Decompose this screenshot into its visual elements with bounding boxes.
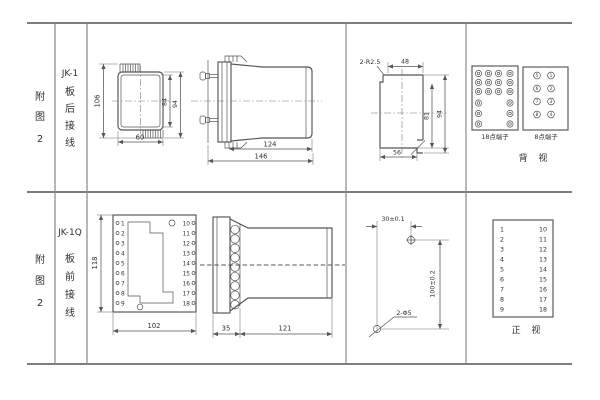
table-grid — [27, 23, 572, 364]
figure2-label-cell: 附 图 2 — [35, 253, 45, 309]
terminal-pin-mark — [509, 90, 512, 93]
terminal-pin — [116, 222, 119, 225]
terminal-number: 10 — [183, 221, 191, 227]
terminal-number: 6 — [536, 86, 539, 91]
terminal-pin — [192, 282, 195, 285]
terminal-pin-mark — [509, 112, 512, 115]
terminal-bump — [231, 291, 240, 300]
terminal-pin-mark — [497, 81, 500, 84]
terminal-block-8-grid: 51627384 — [534, 72, 555, 118]
terminal-number: 9 — [500, 307, 504, 314]
dim-cutout-inner-height: 81 — [424, 112, 431, 120]
terminal-pin — [485, 70, 491, 76]
terminal-pin-mark — [477, 112, 480, 115]
dim-outer-height: 94 — [172, 100, 179, 108]
figure-label-char: 2 — [37, 298, 43, 309]
terminal-pin — [116, 302, 119, 305]
dim-cutout-height: 94 — [437, 110, 444, 118]
relay-front-wiring-side-view: 35 121 — [200, 217, 345, 338]
terminal-number: 7 — [536, 99, 539, 104]
terminal-pin — [192, 262, 195, 265]
terminal-number: 7 — [500, 287, 504, 294]
terminal-number: 10 — [539, 227, 547, 234]
dim-width: 60 — [136, 134, 145, 142]
dim-case-length: 121 — [279, 325, 292, 333]
terminal-number: 11 — [183, 231, 191, 237]
wiring-char: 接 — [65, 288, 75, 301]
model-name: JK-1Q — [57, 228, 82, 238]
terminal-pin — [507, 88, 513, 94]
terminal-block-18-label: 18点端子 — [481, 132, 509, 141]
figure-label-char: 图 — [35, 275, 45, 287]
terminal-number: 3 — [550, 99, 553, 104]
terminal-bump — [231, 244, 240, 253]
terminal-pin — [495, 79, 501, 85]
back-view-label: 背 视 — [519, 152, 552, 164]
terminal-number: 1 — [500, 227, 504, 234]
terminal-number: 4 — [500, 257, 504, 264]
mounting-bolt — [200, 72, 218, 80]
terminal-number: 15 — [539, 277, 547, 284]
terminal-pin-mark — [497, 90, 500, 93]
terminal-number: 8 — [536, 112, 539, 117]
dim-plate-height: 118 — [91, 257, 99, 270]
terminal-pin-mark — [509, 72, 512, 75]
terminal-number: 16 — [183, 281, 191, 287]
terminal-pin-mark — [487, 90, 490, 93]
figure-label-char: 图 — [35, 111, 45, 123]
terminal-number: 11 — [539, 237, 547, 244]
panel-cutout-view: 2-R2.5 48 81 94 56 — [360, 59, 449, 162]
terminal-number: 2 — [550, 86, 553, 91]
terminal-block-8-label: 8点端子 — [534, 132, 558, 141]
figure1-model-cell: JK-1 板 后 接 线 — [61, 69, 79, 149]
dim-hole-v-spacing: 100±0.2 — [430, 270, 437, 297]
terminal-number: 5 — [536, 73, 539, 78]
figure-label-char: 2 — [37, 134, 43, 145]
terminal-number: 15 — [183, 271, 191, 277]
terminal-pin — [192, 302, 195, 305]
terminal-pin-mark — [497, 72, 500, 75]
dim-top-width: 48 — [401, 59, 409, 66]
terminal-pin — [116, 262, 119, 265]
terminal-pin — [192, 232, 195, 235]
terminal-number: 17 — [539, 297, 547, 304]
terminal-number: 9 — [121, 301, 125, 307]
dim-bottom-width: 56 — [393, 150, 401, 157]
drawing-svg: 附 图 2 JK-1 板 后 接 线 106 84 94 60 — [0, 0, 600, 400]
terminal-number: 17 — [183, 291, 191, 297]
terminal-number: 18 — [539, 307, 547, 314]
terminal-pin — [485, 88, 491, 94]
terminal-pin — [507, 100, 513, 106]
terminal-number: 6 — [500, 277, 504, 284]
terminal-pin — [475, 110, 481, 116]
terminal-number: 7 — [121, 281, 125, 287]
dim-hole-h-spacing: 30±0.1 — [381, 216, 404, 223]
terminal-pin — [116, 242, 119, 245]
terminal-pin — [475, 121, 481, 127]
terminal-block-18-grid — [475, 70, 513, 127]
panel-drilling-plan: 30±0.1 100±0.2 2-Φ5 — [366, 216, 449, 337]
dim-flange-depth: 35 — [222, 325, 231, 333]
relay-rear-view: 106 84 94 60 — [94, 64, 185, 146]
terminal-number: 8 — [500, 297, 504, 304]
terminal-pin — [192, 292, 195, 295]
wiring-char: 接 — [65, 119, 75, 132]
wiring-char: 板 — [65, 85, 75, 98]
terminal-pin — [475, 88, 481, 94]
dim-corner-radius-note: 2-R2.5 — [360, 59, 381, 66]
terminal-pin — [116, 292, 119, 295]
terminal-number: 4 — [550, 112, 553, 117]
terminal-bump — [231, 225, 240, 234]
terminal-list: 123456789101112131415161718 — [500, 227, 547, 314]
terminal-bump — [231, 272, 240, 281]
terminal-pin-mark — [477, 123, 480, 126]
terminal-number: 12 — [183, 241, 191, 247]
terminal-pin-mark — [487, 72, 490, 75]
terminal-pin — [507, 70, 513, 76]
figure-label-char: 附 — [35, 90, 45, 103]
wiring-char: 线 — [65, 306, 75, 319]
mounting-bolt — [200, 116, 218, 124]
dim-total-height: 106 — [94, 95, 102, 108]
dim-hole-diameter-note: 2-Φ5 — [396, 310, 411, 317]
terminal-number: 14 — [539, 267, 547, 274]
terminal-pin-mark — [477, 81, 480, 84]
dim-inner-height: 84 — [162, 98, 169, 106]
terminal-back-view: 18点端子 51627384 8点端子 背 视 — [472, 66, 568, 164]
terminal-number: 16 — [539, 287, 547, 294]
terminal-number: 4 — [121, 251, 125, 257]
terminal-bump — [231, 235, 240, 244]
terminal-number: 13 — [539, 257, 547, 264]
technical-drawing-sheet: 附 图 2 JK-1 板 后 接 线 106 84 94 60 — [0, 0, 600, 400]
terminal-pin-mark — [477, 72, 480, 75]
terminal-pin — [495, 70, 501, 76]
terminal-number: 2 — [121, 231, 125, 237]
terminal-pin-mark — [477, 90, 480, 93]
terminal-number: 5 — [121, 261, 125, 267]
wiring-char: 线 — [65, 136, 75, 149]
terminal-number: 3 — [500, 247, 504, 254]
terminal-pin — [116, 252, 119, 255]
terminal-pin-mark — [487, 81, 490, 84]
dim-case-length: 124 — [264, 141, 277, 149]
terminal-bump — [231, 282, 240, 291]
model-name: JK-1 — [61, 69, 79, 79]
figure2-model-cell: JK-1Q 板 前 接 线 — [57, 228, 82, 319]
terminal-number: 12 — [539, 247, 547, 254]
terminal-bump — [231, 253, 240, 262]
terminal-pin — [475, 100, 481, 106]
terminal-front-view: 123456789101112131415161718 正 视 — [493, 220, 553, 336]
dim-plate-width: 102 — [148, 322, 161, 330]
terminal-pin — [192, 252, 195, 255]
terminal-number: 3 — [121, 241, 125, 247]
terminal-pin — [192, 272, 195, 275]
terminal-pin — [507, 121, 513, 127]
terminal-pin — [475, 79, 481, 85]
terminal-pin — [507, 110, 513, 116]
terminal-number: 2 — [500, 237, 504, 244]
terminal-pin — [475, 70, 481, 76]
relay-side-view: 124 146 — [191, 56, 322, 165]
terminal-pin — [485, 79, 491, 85]
front-view-label: 正 视 — [512, 324, 545, 336]
side-terminal-bumps — [231, 225, 240, 309]
terminal-pin — [192, 242, 195, 245]
terminal-pin-mark — [509, 102, 512, 105]
terminal-pin — [116, 282, 119, 285]
relay-front-plate-view: 123456789101112131415161718 118 102 — [91, 215, 196, 335]
terminal-pin — [192, 222, 195, 225]
terminal-pin — [116, 232, 119, 235]
terminal-pin — [116, 272, 119, 275]
terminal-pin-mark — [509, 123, 512, 126]
figure-label-char: 附 — [35, 253, 45, 266]
terminal-pin — [495, 88, 501, 94]
terminal-pin — [507, 79, 513, 85]
wiring-char: 前 — [65, 270, 75, 283]
terminal-number: 1 — [550, 73, 553, 78]
wiring-char: 板 — [65, 252, 75, 265]
figure1-label-cell: 附 图 2 — [35, 90, 45, 145]
dim-total-length: 146 — [255, 153, 268, 161]
terminal-number: 18 — [183, 301, 191, 307]
terminal-pin-mark — [477, 102, 480, 105]
terminal-number: 13 — [183, 251, 191, 257]
terminal-number: 6 — [121, 271, 125, 277]
terminal-pin-mark — [509, 81, 512, 84]
terminal-bump — [231, 263, 240, 272]
wiring-char: 后 — [65, 103, 75, 115]
terminal-number: 5 — [500, 267, 504, 274]
terminal-number: 1 — [121, 221, 125, 227]
terminal-number: 14 — [183, 261, 191, 267]
terminal-number: 8 — [121, 291, 125, 297]
